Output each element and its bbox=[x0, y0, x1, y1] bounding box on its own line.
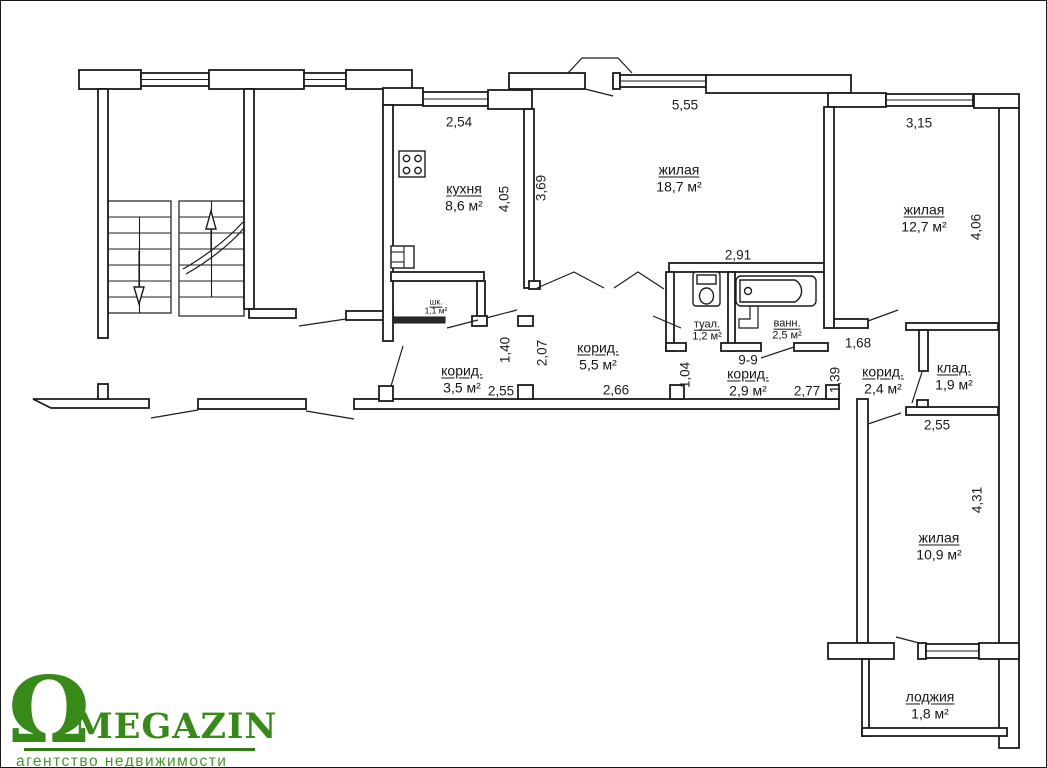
dim-corridor-2-9-width: 2,77 bbox=[794, 384, 820, 399]
room-label-bath: ванн.2,5 м² bbox=[772, 318, 802, 343]
exterior-wall-top bbox=[79, 70, 532, 109]
kitchen-window bbox=[423, 92, 488, 106]
window bbox=[304, 73, 346, 86]
sink-icon bbox=[391, 246, 414, 268]
stairwell bbox=[98, 89, 393, 338]
closet-shelf bbox=[393, 317, 445, 323]
door-swing bbox=[868, 310, 898, 321]
door-swing bbox=[585, 89, 613, 96]
room-label-corridor-5-5: корид.5,5 м² bbox=[577, 339, 619, 372]
door-swing bbox=[912, 372, 922, 403]
room-label-closet: шк.1,1 м² bbox=[425, 298, 448, 317]
dim-corridor-3-5-width: 2,55 bbox=[488, 384, 514, 399]
agency-logo: Ω MEGAZIN агентство недвижимости bbox=[8, 675, 264, 768]
room-label-living-18-7: жилая18,7 м² bbox=[656, 161, 701, 194]
stairs-down-arrow-icon bbox=[134, 251, 144, 304]
dim-san-width: 2,91 bbox=[725, 248, 751, 263]
section-line bbox=[761, 347, 794, 358]
room-label-corridor-2-4: корид.2,4 м² bbox=[862, 363, 904, 396]
stairs-flight-up bbox=[179, 201, 244, 316]
dim-living-18-7-height: 3,69 bbox=[534, 175, 549, 201]
living-18-7-top-wall bbox=[509, 58, 851, 96]
stairs-flight-down bbox=[108, 201, 171, 313]
section-mark: 9-9 bbox=[738, 353, 758, 368]
washbasin-icon bbox=[739, 306, 758, 328]
logo-underline bbox=[24, 748, 255, 751]
dim-living-10-9-height: 4,31 bbox=[970, 487, 985, 513]
dim-living-12-7-height: 4,06 bbox=[969, 214, 984, 240]
dim-closet-height: 1,40 bbox=[498, 337, 513, 363]
dim-corridor-5-5-height: 2,07 bbox=[535, 340, 550, 366]
window bbox=[141, 73, 209, 86]
room-label-toilet: туал.1,2 м² bbox=[692, 319, 722, 344]
living-12-7-top-wall bbox=[828, 93, 1019, 108]
window bbox=[620, 75, 706, 87]
dim-living-18-7-width: 5,55 bbox=[672, 98, 698, 113]
room-label-corridor-3-5: корид.3,5 м² bbox=[441, 362, 483, 395]
kitchen-walls bbox=[383, 105, 534, 341]
door-swing bbox=[868, 413, 901, 424]
room-label-storage: клад.1,9 м² bbox=[935, 359, 973, 392]
dim-opening-1-39: 1,39 bbox=[828, 367, 843, 393]
bathtub-icon bbox=[736, 276, 816, 306]
stove-icon bbox=[399, 151, 425, 177]
room-label-loggia: лоджия1,8 м² bbox=[906, 688, 955, 721]
toilet-icon bbox=[693, 272, 720, 306]
window bbox=[886, 94, 973, 106]
dim-passage-height: 1,04 bbox=[678, 362, 693, 388]
window bbox=[926, 644, 979, 658]
exterior-porch-walls bbox=[33, 384, 354, 419]
sanitary-block bbox=[653, 107, 834, 358]
room-label-living-12-7: жилая12,7 м² bbox=[901, 201, 946, 234]
dim-corridor-5-5-width: 2,66 bbox=[603, 383, 629, 398]
dim-kitchen-width: 2,54 bbox=[446, 115, 472, 130]
room-label-kitchen: кухня8,6 м² bbox=[445, 180, 483, 213]
logo-tagline: агентство недвижимости bbox=[16, 753, 227, 768]
entrance-door-swing bbox=[391, 346, 403, 386]
living-18-7-passage bbox=[529, 272, 664, 289]
floorplan-canvas: кухня8,6 м² жилая18,7 м² жилая12,7 м² жи… bbox=[0, 0, 1047, 768]
dim-storage-width: 2,55 bbox=[924, 418, 950, 433]
entry-canopy bbox=[568, 58, 632, 73]
dim-kitchen-height: 4,05 bbox=[497, 186, 512, 212]
dim-opening-1-68: 1,68 bbox=[845, 336, 871, 351]
logo-name: MEGAZIN bbox=[74, 709, 277, 744]
room-label-living-10-9: жилая10,9 м² bbox=[916, 529, 961, 562]
room-label-corridor-2-9: корид.2,9 м² bbox=[727, 365, 769, 398]
dim-living-12-7-width: 3,15 bbox=[906, 116, 932, 131]
door-swing bbox=[486, 310, 517, 318]
door-swing bbox=[299, 319, 346, 326]
